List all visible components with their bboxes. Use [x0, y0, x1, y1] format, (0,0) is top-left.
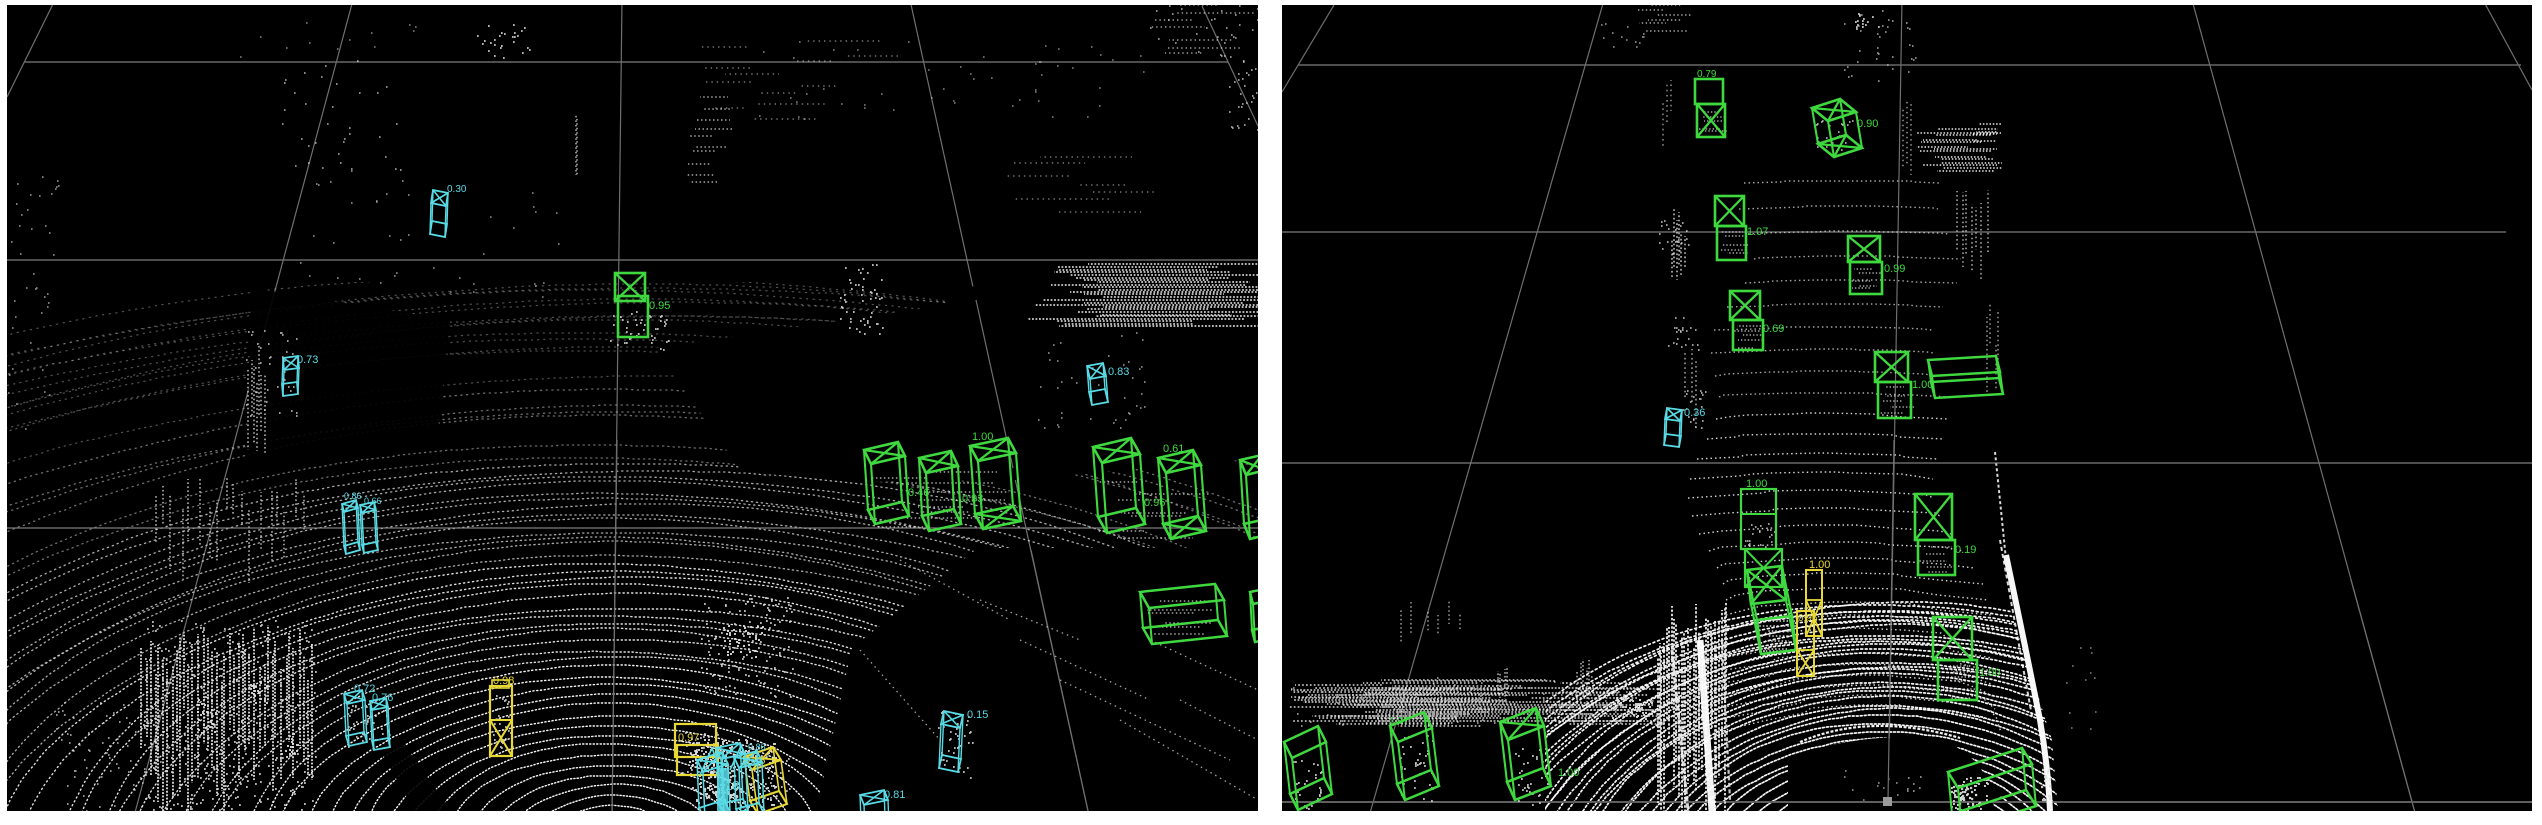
svg-text:1.00: 1.00: [1809, 559, 1830, 571]
svg-text:1.00: 1.00: [1746, 478, 1767, 490]
svg-text:0.66: 0.66: [364, 496, 382, 506]
svg-text:1.00: 1.00: [1979, 667, 2000, 679]
svg-text:1.07: 1.07: [1389, 716, 1409, 727]
svg-text:0.95: 0.95: [649, 300, 670, 312]
svg-text:0.86: 0.86: [344, 491, 362, 501]
svg-text:0.99: 0.99: [1884, 263, 1905, 275]
svg-text:0.98: 0.98: [493, 675, 514, 687]
svg-text:0.19: 0.19: [1955, 544, 1976, 556]
svg-text:0.36: 0.36: [1684, 407, 1705, 419]
svg-text:0.61: 0.61: [1163, 443, 1184, 455]
svg-text:0.96: 0.96: [1798, 613, 1818, 624]
svg-text:1.00: 1.00: [1558, 767, 1579, 779]
svg-text:0.76: 0.76: [372, 692, 393, 704]
svg-text:0.97: 0.97: [678, 732, 699, 744]
svg-text:1.00: 1.00: [972, 431, 993, 443]
svg-text:0.69: 0.69: [1763, 323, 1784, 335]
svg-text:0.30: 0.30: [447, 184, 467, 195]
svg-text:0.90: 0.90: [1857, 118, 1878, 130]
svg-text:0.85: 0.85: [742, 758, 762, 769]
svg-text:0.86: 0.86: [748, 742, 766, 752]
svg-text:0.83: 0.83: [1108, 366, 1129, 378]
svg-text:0.79: 0.79: [1697, 69, 1717, 80]
svg-text:18: 18: [725, 778, 739, 793]
svg-text:0.73: 0.73: [297, 354, 318, 366]
svg-text:0.81: 0.81: [884, 789, 905, 801]
svg-text:0.15: 0.15: [967, 709, 988, 721]
svg-text:1.07: 1.07: [1747, 226, 1768, 238]
